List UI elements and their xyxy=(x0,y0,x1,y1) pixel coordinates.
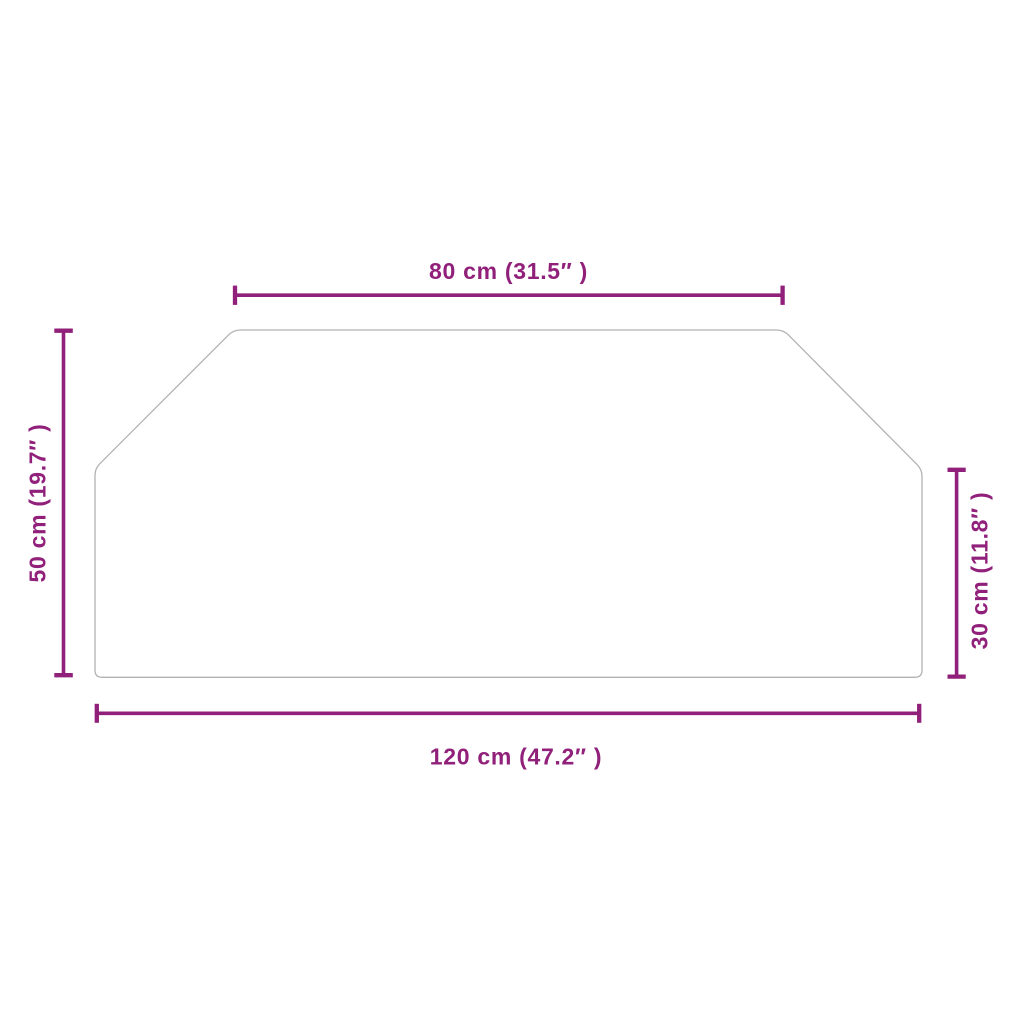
svg-text:50 cm (19.7″ ): 50 cm (19.7″ ) xyxy=(25,424,51,583)
svg-text:30 cm (11.8″ ): 30 cm (11.8″ ) xyxy=(967,492,993,650)
svg-text:80 cm (31.5″ ): 80 cm (31.5″ ) xyxy=(429,258,588,284)
svg-text:120 cm (47.2″ ): 120 cm (47.2″ ) xyxy=(430,744,602,770)
